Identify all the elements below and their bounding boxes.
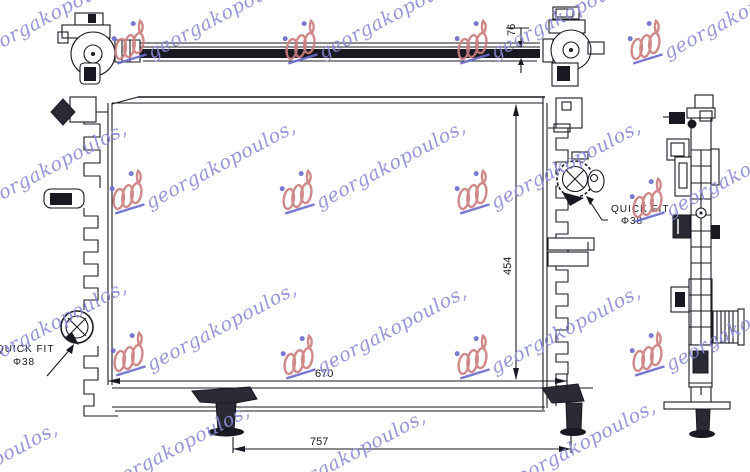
dimension-core-width: 670	[108, 368, 567, 390]
quick-fit-connector-right	[557, 161, 604, 206]
radiator-front-view: 670 757 454 QUICK FIT Φ38	[0, 97, 669, 453]
radiator-side-view	[663, 95, 744, 438]
crossbar-bar	[140, 49, 540, 58]
drawing-svg: 76	[0, 0, 750, 472]
crossbar-left-bracket	[58, 13, 140, 84]
left-tank	[44, 97, 118, 416]
crossbar-right-bracket	[543, 7, 604, 86]
bottom-right-mount-pin	[542, 384, 586, 436]
quick-fit-right-text: QUICK FIT	[611, 204, 669, 215]
dim-757-label: 757	[310, 436, 328, 448]
quick-fit-label-right: QUICK FIT Φ38	[586, 196, 669, 227]
quick-fit-right-diameter: Φ38	[621, 216, 643, 227]
dim-76-label: 76	[506, 24, 518, 36]
technical-drawing-page: 76	[0, 0, 750, 472]
dim-670-label: 670	[315, 368, 333, 380]
quick-fit-left-diameter: Φ38	[13, 357, 35, 368]
right-tank	[548, 98, 604, 406]
quick-fit-label-left: QUICK FIT Φ38	[0, 344, 74, 376]
dimension-core-height: 454	[502, 104, 519, 380]
quick-fit-left-text: QUICK FIT	[0, 344, 54, 355]
side-view-quick-fit-stub	[713, 309, 744, 345]
quick-fit-connector-left	[61, 311, 93, 345]
dim-454-label: 454	[502, 257, 514, 275]
crossbar-top-view: 76	[58, 7, 604, 86]
side-view-bottom-pin	[664, 402, 730, 438]
dimension-overall-width: 757	[233, 436, 571, 453]
dimension-bar-thickness: 76	[506, 24, 529, 73]
bottom-left-mount-pin	[192, 387, 257, 437]
